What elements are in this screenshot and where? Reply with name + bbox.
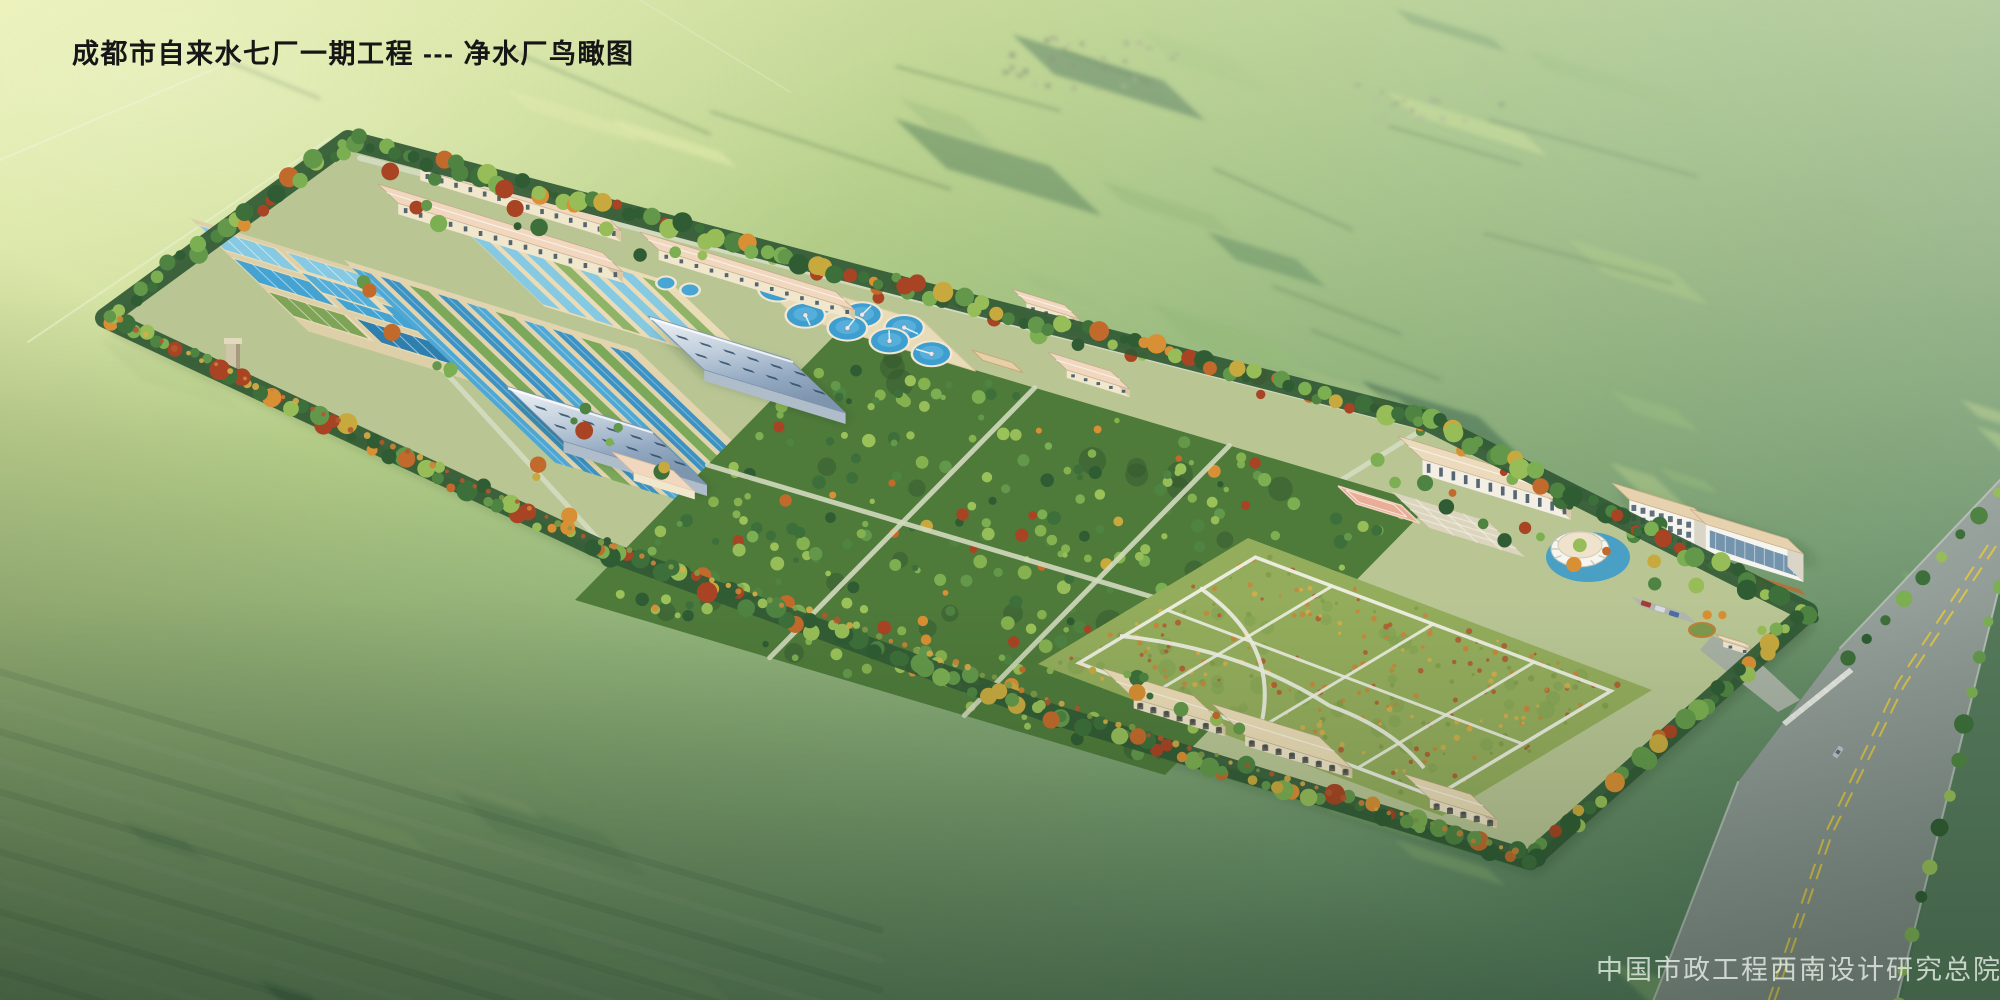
aerial-scene — [0, 0, 2000, 1000]
design-institute-watermark: 中国市政工程西南设计研究总院 — [1596, 948, 2000, 987]
vignette — [0, 0, 2000, 1000]
rendering-canvas: 成都市自来水七厂一期工程 --- 净水厂鸟瞰图 中国市政工程西南设计研究总院 — [0, 0, 2000, 1000]
drawing-title: 成都市自来水七厂一期工程 --- 净水厂鸟瞰图 — [72, 32, 634, 71]
